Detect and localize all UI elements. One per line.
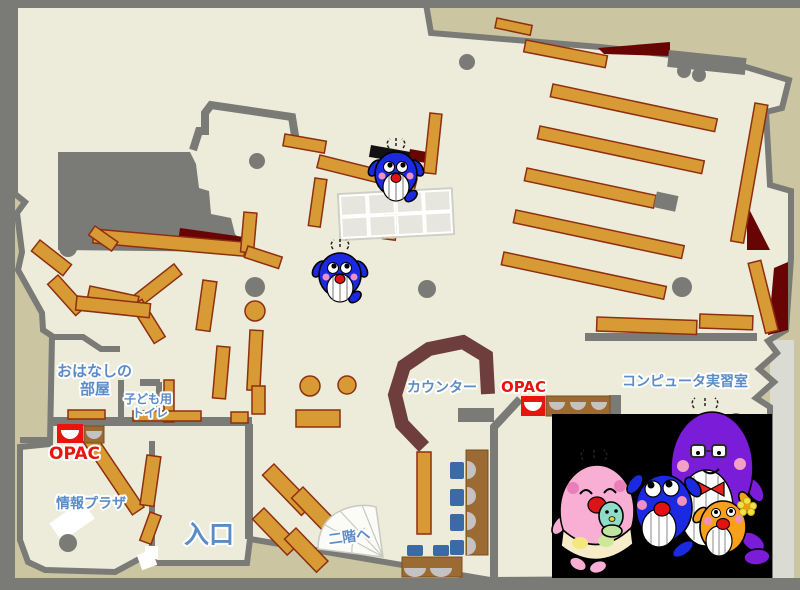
toilet-label-line2: トイレ xyxy=(132,406,168,420)
toilet-label-line1: 子ども用 xyxy=(124,392,172,406)
counter-label: カウンター xyxy=(407,380,477,396)
chair xyxy=(407,545,423,556)
opac-label-right: OPAC xyxy=(501,378,546,396)
computer-room-label: コンピュータ実習室 xyxy=(622,373,748,390)
bookshelf xyxy=(252,386,265,414)
mascot-family-photo xyxy=(549,397,772,578)
bookshelf xyxy=(700,314,753,330)
bookshelf xyxy=(597,317,697,334)
storyroom-label-line2: 部屋 xyxy=(80,380,110,398)
storyroom-label-line1: おはなしの xyxy=(57,362,132,380)
chair xyxy=(450,540,464,555)
counter-back-table xyxy=(458,408,494,422)
chair xyxy=(450,514,464,531)
opac-station-right xyxy=(521,396,610,416)
entrance-label: 入口 xyxy=(184,520,234,549)
bookshelf xyxy=(247,330,263,391)
chair xyxy=(433,545,449,556)
opac-label-left: OPAC xyxy=(49,444,100,464)
terrace-area xyxy=(770,340,794,578)
joho-plaza-label: 情報プラザ xyxy=(56,495,126,512)
bookshelf xyxy=(417,452,431,534)
bookshelf xyxy=(296,410,340,427)
bookshelf xyxy=(231,412,248,423)
chair xyxy=(450,462,464,479)
opac-station-left xyxy=(57,424,104,443)
chair xyxy=(450,489,464,506)
library-floor-map: おはなしの 部屋 子ども用 トイレ OPAC OPAC 情報プラザ 入口 カウン… xyxy=(0,0,800,590)
bookshelf xyxy=(68,410,105,419)
plaza-door-gap xyxy=(145,546,158,559)
